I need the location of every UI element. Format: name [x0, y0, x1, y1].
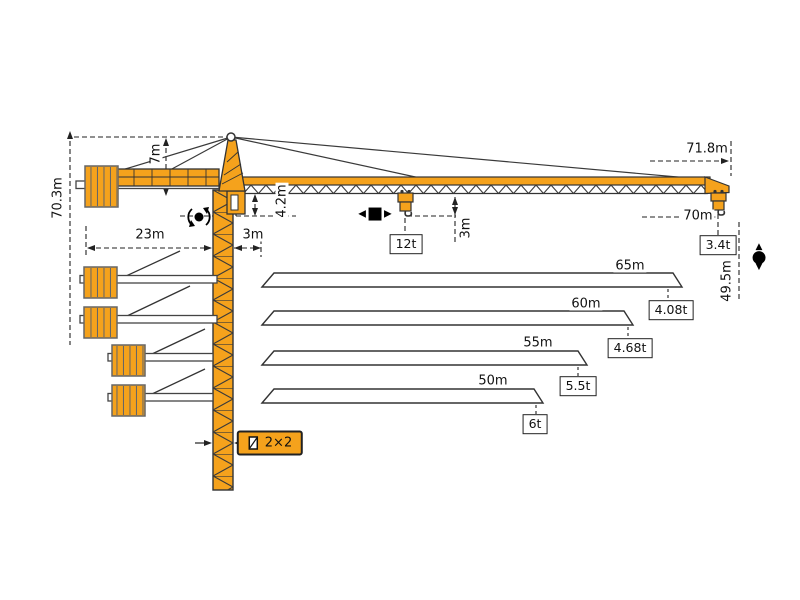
label-total-height: 70.3m	[52, 175, 65, 221]
trolley-square-icon: ■	[367, 206, 383, 223]
slewing-rotation-icon	[188, 207, 209, 227]
label-hook-clearance: 3m	[460, 216, 473, 241]
jib-variant-outline-50m	[262, 389, 543, 403]
label-counter-jib-radius: 23m	[133, 229, 166, 242]
jib-variant-load-badge-65m: 4.08t	[649, 300, 694, 320]
counterweight-block	[85, 166, 118, 207]
tip-load-badge: 3.4t	[700, 235, 737, 255]
tower-head	[219, 140, 245, 191]
label-jib-depth: 4.2m	[276, 182, 289, 219]
counterweight-option-3	[108, 329, 213, 376]
left-arrow-icon: ◀	[358, 209, 366, 219]
jib-variant-length-60m: 60m	[569, 298, 602, 311]
jib-variant-length-65m: 65m	[613, 260, 646, 273]
label-tower-head-height: 7m	[150, 142, 163, 167]
max-load-badge: 12t	[390, 234, 423, 254]
jib-variant-outline-60m	[262, 311, 633, 325]
jib-variant-outline-55m	[262, 351, 587, 365]
trolley-travel-icon: ◀ ■ ▶	[358, 206, 391, 223]
counter-jib	[76, 166, 219, 207]
mast-section-badge: 2×2	[237, 431, 303, 456]
label-jib-root-offset: 3m	[241, 229, 266, 242]
jib-variant-load-badge-55m: 5.5t	[560, 376, 597, 396]
main-jib	[236, 177, 729, 194]
label-tip-radius: 70m	[681, 210, 714, 223]
jib-variant-length-50m: 50m	[476, 375, 509, 388]
hoisting-icon: ▲ ● ▼	[752, 244, 767, 270]
label-overall-length: 71.8m	[684, 143, 730, 156]
operator-cab	[227, 191, 245, 214]
jib-variant-outline-65m	[262, 273, 682, 287]
trolley-hook-assembly	[398, 190, 413, 216]
mast-section-label: 2×2	[265, 436, 292, 451]
counterweight-option-1	[80, 251, 217, 298]
right-arrow-icon: ▶	[384, 209, 392, 219]
down-arrow-icon: ▼	[756, 263, 763, 270]
label-hook-height: 49.5m	[721, 258, 734, 304]
tower-mast	[213, 190, 233, 490]
mast-section-icon	[248, 436, 259, 451]
apex-pivot	[227, 133, 235, 141]
jib-variant-load-badge-60m: 4.68t	[608, 338, 653, 358]
jib-variant-length-55m: 55m	[521, 337, 554, 350]
crane-diagram: 70.3m 7m 23m 3m 4.2m 3m 71.8m 70m 49.5m …	[0, 0, 800, 600]
jib-variant-load-badge-50m: 6t	[523, 414, 548, 434]
